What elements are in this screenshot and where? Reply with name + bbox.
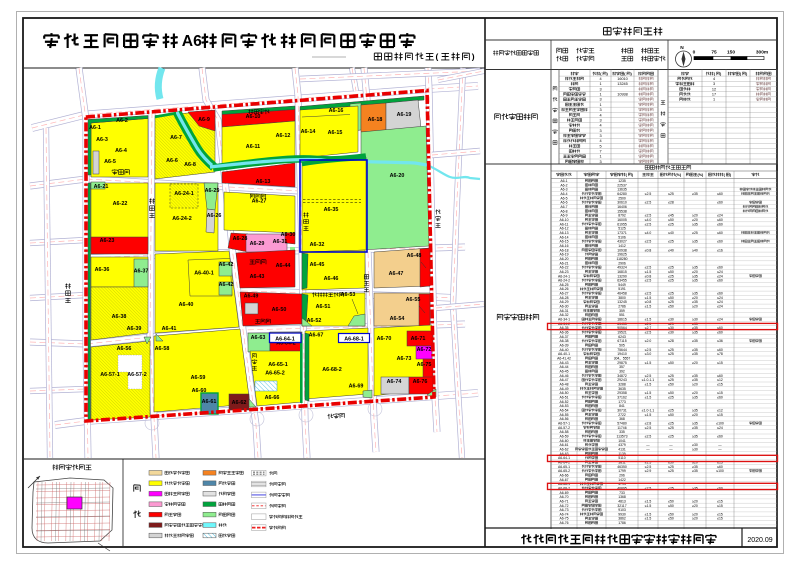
svg-text:≤100: ≤100: [716, 469, 724, 473]
svg-text:A6-1: A6-1: [89, 125, 101, 131]
svg-text:3: 3: [713, 82, 715, 86]
svg-text:A6-61: A6-61: [202, 399, 217, 405]
svg-text:4: 4: [599, 77, 601, 81]
svg-text:≤15: ≤15: [717, 383, 723, 387]
svg-text:≤25: ≤25: [668, 300, 674, 304]
svg-text:≤16: ≤16: [717, 248, 723, 252]
svg-text:≥35: ≥35: [692, 435, 698, 439]
svg-text:A6-2: A6-2: [560, 183, 567, 187]
svg-text:≤25: ≤25: [668, 435, 674, 439]
svg-text:4379: 4379: [618, 443, 626, 447]
svg-text:A6-35: A6-35: [324, 207, 339, 213]
svg-text:): ): [720, 72, 722, 76]
svg-text:A6-64-1: A6-64-1: [275, 336, 294, 342]
svg-text:A6-26: A6-26: [559, 287, 568, 291]
svg-text:≤1.5: ≤1.5: [645, 499, 652, 503]
svg-text:A6-11: A6-11: [246, 144, 260, 150]
svg-text:551: 551: [619, 313, 625, 317]
svg-text:16010: 16010: [617, 77, 628, 81]
svg-text:3: 3: [599, 118, 601, 122]
svg-text:A6-43: A6-43: [250, 274, 265, 280]
svg-text:—: —: [718, 448, 722, 452]
svg-text:≥20: ≥20: [692, 383, 698, 387]
svg-text:≤50: ≤50: [668, 517, 674, 521]
svg-text:4: 4: [599, 139, 601, 143]
svg-text:≥20: ≥20: [692, 413, 698, 417]
svg-text:A6-42: A6-42: [219, 282, 234, 288]
svg-text:N: N: [680, 45, 684, 51]
svg-text:A6-26: A6-26: [207, 213, 222, 219]
svg-text:≥35: ≥35: [692, 192, 698, 196]
svg-text:≤2.5: ≤2.5: [645, 279, 652, 283]
svg-text:A6-59: A6-59: [191, 375, 206, 381]
svg-text:≤2.5: ≤2.5: [645, 240, 652, 244]
svg-text:A6-67: A6-67: [309, 333, 324, 339]
svg-text:A6-71: A6-71: [411, 336, 426, 342]
svg-text:A6-57-1: A6-57-1: [100, 372, 119, 378]
svg-text:A6-37: A6-37: [134, 269, 149, 275]
svg-text:3862: 3862: [618, 517, 626, 521]
svg-text:≤50: ≤50: [668, 499, 674, 503]
svg-text:—: —: [646, 448, 650, 452]
svg-text:13245: 13245: [617, 82, 628, 86]
svg-text:4: 4: [713, 77, 715, 81]
svg-text:≤1.5: ≤1.5: [645, 413, 652, 417]
svg-text:A6-65-1: A6-65-1: [268, 362, 287, 368]
svg-text:A6-55: A6-55: [406, 297, 421, 303]
svg-text:): ): [472, 51, 475, 61]
svg-text:≤28: ≤28: [668, 339, 674, 343]
svg-text:(: (: [626, 173, 628, 177]
svg-text:17: 17: [712, 93, 716, 97]
svg-text:A6-65-2: A6-65-2: [265, 371, 284, 377]
svg-text:≤2.5: ≤2.5: [645, 214, 652, 218]
svg-text:≤50: ≤50: [668, 270, 674, 274]
svg-text:A6-3: A6-3: [96, 137, 108, 143]
svg-text:A6-42: A6-42: [219, 262, 234, 268]
svg-text:A6-46: A6-46: [324, 276, 339, 282]
svg-text:A6: A6: [182, 33, 202, 50]
svg-text:≤24: ≤24: [717, 426, 723, 430]
svg-text:≤60: ≤60: [717, 396, 723, 400]
svg-text:≤25: ≤25: [668, 352, 674, 356]
svg-text:A6-41: A6-41: [162, 326, 177, 332]
svg-text:≤15: ≤15: [717, 517, 723, 521]
svg-text:≤28: ≤28: [668, 201, 674, 205]
svg-text:150: 150: [727, 50, 735, 56]
svg-text:A6-49: A6-49: [559, 387, 568, 391]
svg-text:A6-73: A6-73: [397, 356, 412, 362]
svg-text:A6-5: A6-5: [104, 159, 116, 165]
svg-text:≤30: ≤30: [668, 331, 674, 335]
svg-text:≤36: ≤36: [717, 339, 723, 343]
svg-text:≤2.9: ≤2.9: [645, 469, 652, 473]
svg-text:A6-14: A6-14: [301, 129, 316, 135]
svg-text:≤60: ≤60: [717, 201, 723, 205]
svg-text:≤25: ≤25: [668, 469, 674, 473]
svg-text:≥40: ≥40: [692, 248, 698, 252]
svg-text:A6-56: A6-56: [559, 417, 568, 421]
svg-text:A6-72: A6-72: [417, 347, 432, 353]
svg-text:—: —: [669, 448, 673, 452]
svg-text:A6-45: A6-45: [310, 262, 325, 268]
svg-text:A6-39: A6-39: [127, 326, 142, 332]
svg-text:≤40: ≤40: [668, 231, 674, 235]
svg-text:A6-76: A6-76: [559, 521, 568, 525]
svg-text:A6-4: A6-4: [115, 148, 127, 154]
svg-text:A6-9: A6-9: [560, 214, 567, 218]
svg-text:≥35: ≥35: [692, 352, 698, 356]
svg-text:22537: 22537: [617, 183, 627, 187]
svg-text:A6-58: A6-58: [559, 430, 568, 434]
svg-text:≤1.5: ≤1.5: [645, 305, 652, 309]
svg-text:A6-22: A6-22: [113, 201, 128, 207]
svg-text:A6-7: A6-7: [170, 135, 182, 141]
svg-text:A6-24-2: A6-24-2: [172, 216, 191, 222]
svg-text:A6-31: A6-31: [273, 239, 288, 245]
svg-text:≤60: ≤60: [717, 331, 723, 335]
svg-text:≤24: ≤24: [717, 300, 723, 304]
svg-text:1: 1: [599, 103, 601, 107]
svg-text:≤25: ≤25: [668, 279, 674, 283]
svg-text:5191: 5191: [618, 287, 626, 291]
svg-text:≤0.8: ≤0.8: [645, 248, 652, 252]
svg-text:≥20: ≥20: [692, 517, 698, 521]
svg-text:—: —: [646, 443, 650, 447]
svg-text:A6-29: A6-29: [250, 241, 265, 247]
svg-text:A6-28: A6-28: [233, 236, 248, 242]
svg-text:≥35: ≥35: [692, 469, 698, 473]
svg-text:A6-23: A6-23: [100, 238, 115, 244]
svg-text:A6-51: A6-51: [316, 304, 331, 310]
svg-text:(%): (%): [675, 173, 682, 177]
svg-text:3: 3: [599, 98, 601, 102]
svg-text:≥20: ≥20: [692, 361, 698, 365]
svg-text:300m: 300m: [756, 50, 768, 56]
svg-text:A6-6: A6-6: [166, 158, 178, 164]
svg-text:7: 7: [599, 150, 601, 154]
svg-text:A6-10: A6-10: [246, 114, 261, 120]
svg-text:≤60: ≤60: [717, 240, 723, 244]
svg-text:≤60: ≤60: [717, 279, 723, 283]
svg-text:): ): [631, 72, 633, 76]
svg-text:≤25: ≤25: [668, 222, 674, 226]
svg-text:A6-70: A6-70: [377, 336, 392, 342]
svg-text:≤24: ≤24: [717, 214, 723, 218]
svg-text:—: —: [669, 443, 673, 447]
svg-text:A6-16: A6-16: [329, 108, 344, 114]
svg-text:A6-20: A6-20: [559, 257, 568, 261]
svg-text:A6-50: A6-50: [272, 307, 287, 313]
svg-text:12: 12: [712, 87, 716, 91]
svg-text:A6-61: A6-61: [559, 443, 568, 447]
svg-text:75: 75: [711, 50, 717, 56]
svg-text:A6-44: A6-44: [276, 263, 291, 269]
svg-text:5: 5: [599, 144, 601, 148]
svg-text:A6-54: A6-54: [390, 316, 405, 322]
svg-text:≥35: ≥35: [692, 339, 698, 343]
svg-text:—: —: [718, 443, 722, 447]
svg-text:≤2.0: ≤2.0: [645, 339, 652, 343]
svg-text:(: (: [600, 72, 602, 76]
svg-text:A6-41,42: A6-41,42: [557, 357, 571, 361]
svg-text:): ): [746, 72, 748, 76]
svg-text:≤1.5: ≤1.5: [645, 396, 652, 400]
svg-text:(: (: [714, 72, 716, 76]
svg-text:(: (: [624, 72, 626, 76]
svg-text:A6-71: A6-71: [559, 499, 568, 503]
svg-text:368: 368: [619, 417, 625, 421]
svg-text:≤2.5: ≤2.5: [645, 426, 652, 430]
svg-text:A6-68-1: A6-68-1: [344, 337, 363, 343]
svg-text:≤25: ≤25: [668, 192, 674, 196]
svg-text:≥35: ≥35: [692, 240, 698, 244]
svg-text:A6-9: A6-9: [198, 117, 210, 123]
svg-text:≥35: ≥35: [692, 426, 698, 430]
svg-text:A6-32: A6-32: [559, 313, 568, 317]
svg-text:1: 1: [599, 93, 601, 97]
svg-text:≤50: ≤50: [668, 361, 674, 365]
svg-text:118280: 118280: [616, 257, 627, 261]
svg-text:≥35: ≥35: [692, 396, 698, 400]
svg-text:A6-5: A6-5: [560, 196, 567, 200]
svg-text:16815: 16815: [617, 270, 627, 274]
svg-text:10938: 10938: [617, 93, 628, 97]
svg-text:A6-56: A6-56: [117, 346, 132, 352]
svg-text:≤24: ≤24: [717, 305, 723, 309]
svg-text:3: 3: [599, 134, 601, 138]
svg-text:≤15: ≤15: [717, 361, 723, 365]
svg-text:≤25: ≤25: [668, 396, 674, 400]
svg-text:A6-13: A6-13: [256, 179, 271, 185]
svg-text:A6-45: A6-45: [559, 370, 568, 374]
svg-text:1412: 1412: [618, 244, 626, 248]
svg-text:A6-2: A6-2: [116, 118, 128, 124]
svg-text:≤45: ≤45: [668, 214, 674, 218]
svg-text:≤1.5: ≤1.5: [645, 504, 652, 508]
svg-text:335: 335: [619, 430, 625, 434]
svg-text:2500: 2500: [618, 196, 626, 200]
svg-text:304、5557: 304、5557: [614, 357, 631, 361]
svg-text:A6-76: A6-76: [413, 379, 428, 385]
svg-text:≤40: ≤40: [668, 248, 674, 252]
svg-text:A6-24-1: A6-24-1: [174, 191, 193, 197]
svg-text:A6-12: A6-12: [276, 133, 291, 139]
svg-text:A6-16: A6-16: [559, 244, 568, 248]
svg-text:≥20: ≥20: [692, 504, 698, 508]
svg-text:A6-57-2: A6-57-2: [127, 372, 146, 378]
svg-text:≤50: ≤50: [668, 305, 674, 309]
svg-text:≤25: ≤25: [668, 240, 674, 244]
svg-text:≥20: ≥20: [692, 270, 698, 274]
svg-text:5125: 5125: [618, 227, 626, 231]
svg-text:A6-52: A6-52: [559, 400, 568, 404]
svg-text:≥30: ≥30: [692, 443, 698, 447]
svg-text:3: 3: [599, 87, 601, 91]
svg-text:1773: 1773: [618, 400, 626, 404]
svg-text:≤3.0: ≤3.0: [645, 352, 652, 356]
svg-text:A6-15: A6-15: [328, 130, 343, 136]
svg-text:A6-40-1: A6-40-1: [194, 271, 213, 277]
svg-text:≤1.5: ≤1.5: [645, 270, 652, 274]
svg-text:≤50: ≤50: [668, 383, 674, 387]
svg-text:A6-48: A6-48: [407, 253, 422, 259]
svg-text:A6-20: A6-20: [390, 173, 405, 179]
svg-text:): ): [632, 173, 634, 177]
svg-text:): ): [607, 72, 609, 76]
svg-text:≥20: ≥20: [692, 214, 698, 218]
svg-text:≥25: ≥25: [692, 231, 698, 235]
svg-text:≤60: ≤60: [717, 435, 723, 439]
svg-text:A6-30: A6-30: [281, 232, 296, 238]
svg-text:≤15: ≤15: [717, 413, 723, 417]
svg-text:≤60: ≤60: [717, 231, 723, 235]
svg-text:A6-39: A6-39: [559, 344, 568, 348]
svg-text:(: (: [436, 51, 439, 61]
svg-text:3: 3: [599, 108, 601, 112]
svg-text:A6-74: A6-74: [387, 379, 402, 385]
svg-text:A6-18: A6-18: [368, 117, 383, 123]
svg-text:(: (: [724, 173, 726, 177]
svg-text:A6-75: A6-75: [559, 517, 568, 521]
svg-text:2020.09: 2020.09: [747, 537, 772, 544]
svg-text:≤1.5: ≤1.5: [645, 517, 652, 521]
svg-text:A6-49: A6-49: [244, 294, 259, 300]
svg-text:A6-23: A6-23: [559, 270, 568, 274]
svg-text:≤24: ≤24: [717, 270, 723, 274]
svg-text:≤25: ≤25: [668, 426, 674, 430]
svg-text:A6-62: A6-62: [232, 400, 247, 406]
svg-text:≥20: ≥20: [692, 499, 698, 503]
svg-text:≤2.5: ≤2.5: [645, 201, 652, 205]
svg-text:A6-68-2: A6-68-2: [322, 367, 341, 373]
svg-text:A6-47: A6-47: [389, 271, 404, 277]
svg-text:4: 4: [599, 113, 601, 117]
svg-text:(: (: [740, 72, 742, 76]
svg-text:≤60: ≤60: [717, 192, 723, 196]
svg-text:≥35: ≥35: [692, 331, 698, 335]
svg-text:8792: 8792: [618, 214, 626, 218]
svg-text:≥20: ≥20: [692, 305, 698, 309]
svg-text:A6-27: A6-27: [252, 199, 267, 205]
svg-text:A6-8: A6-8: [184, 162, 196, 168]
svg-text:1786: 1786: [618, 521, 626, 525]
svg-text:A6-66: A6-66: [265, 395, 280, 401]
svg-text:≤78: ≤78: [717, 352, 723, 356]
svg-text:≤15: ≤15: [717, 499, 723, 503]
svg-text:A6-12: A6-12: [559, 227, 568, 231]
svg-text:≤1.5: ≤1.5: [645, 383, 652, 387]
svg-text:≥35: ≥35: [692, 222, 698, 226]
svg-text:A6-58: A6-58: [155, 346, 170, 352]
svg-text:≤60: ≤60: [717, 222, 723, 226]
svg-text:≤2.5: ≤2.5: [645, 192, 652, 196]
svg-text:3635: 3635: [618, 387, 626, 391]
svg-text:A6-19: A6-19: [397, 112, 412, 118]
svg-text:1: 1: [599, 155, 601, 159]
svg-text:A6-63: A6-63: [251, 335, 266, 341]
svg-text:A6-75: A6-75: [417, 362, 432, 368]
svg-text:A6-21: A6-21: [94, 184, 109, 190]
svg-text:≥30: ≥30: [692, 448, 698, 452]
svg-text:A6-69: A6-69: [349, 384, 364, 390]
svg-text:3: 3: [599, 129, 601, 133]
svg-text:≤50: ≤50: [668, 413, 674, 417]
svg-text:4813: 4813: [618, 499, 626, 503]
svg-text:≤0.8: ≤0.8: [645, 300, 652, 304]
svg-text:1: 1: [713, 98, 715, 102]
svg-text:≤1.5: ≤1.5: [645, 361, 652, 365]
svg-text:4: 4: [599, 124, 601, 128]
svg-text:0: 0: [693, 50, 696, 56]
svg-text:A6-38: A6-38: [112, 314, 127, 320]
svg-text:): ): [730, 173, 732, 177]
svg-text:≤2.5: ≤2.5: [645, 222, 652, 226]
svg-text:296: 296: [619, 473, 625, 477]
svg-text:≤50: ≤50: [668, 504, 674, 508]
svg-text:≤4.0: ≤4.0: [645, 231, 652, 235]
svg-text:13245: 13245: [617, 300, 627, 304]
svg-text:A6-60: A6-60: [192, 388, 207, 394]
svg-text:A6-29: A6-29: [559, 300, 568, 304]
svg-text:≥35: ≥35: [692, 300, 698, 304]
svg-text:≤24: ≤24: [717, 318, 723, 322]
svg-text:1: 1: [599, 82, 601, 86]
svg-text:≥35: ≥35: [692, 279, 698, 283]
svg-text:≤2.5: ≤2.5: [645, 331, 652, 335]
svg-text:3: 3: [599, 160, 601, 164]
svg-text:≤2.5: ≤2.5: [645, 435, 652, 439]
svg-text:A6-52: A6-52: [307, 318, 322, 324]
svg-text:505: 505: [619, 344, 625, 348]
svg-text:(%): (%): [698, 173, 705, 177]
svg-text:A6-40: A6-40: [179, 302, 194, 308]
svg-text:A6-36: A6-36: [95, 267, 110, 273]
svg-text:392: 392: [619, 370, 625, 374]
svg-text:≤15: ≤15: [717, 504, 723, 508]
svg-text:A6-25: A6-25: [205, 188, 220, 194]
svg-text:A6-32: A6-32: [310, 242, 325, 248]
svg-text:A6-66: A6-66: [559, 473, 568, 477]
